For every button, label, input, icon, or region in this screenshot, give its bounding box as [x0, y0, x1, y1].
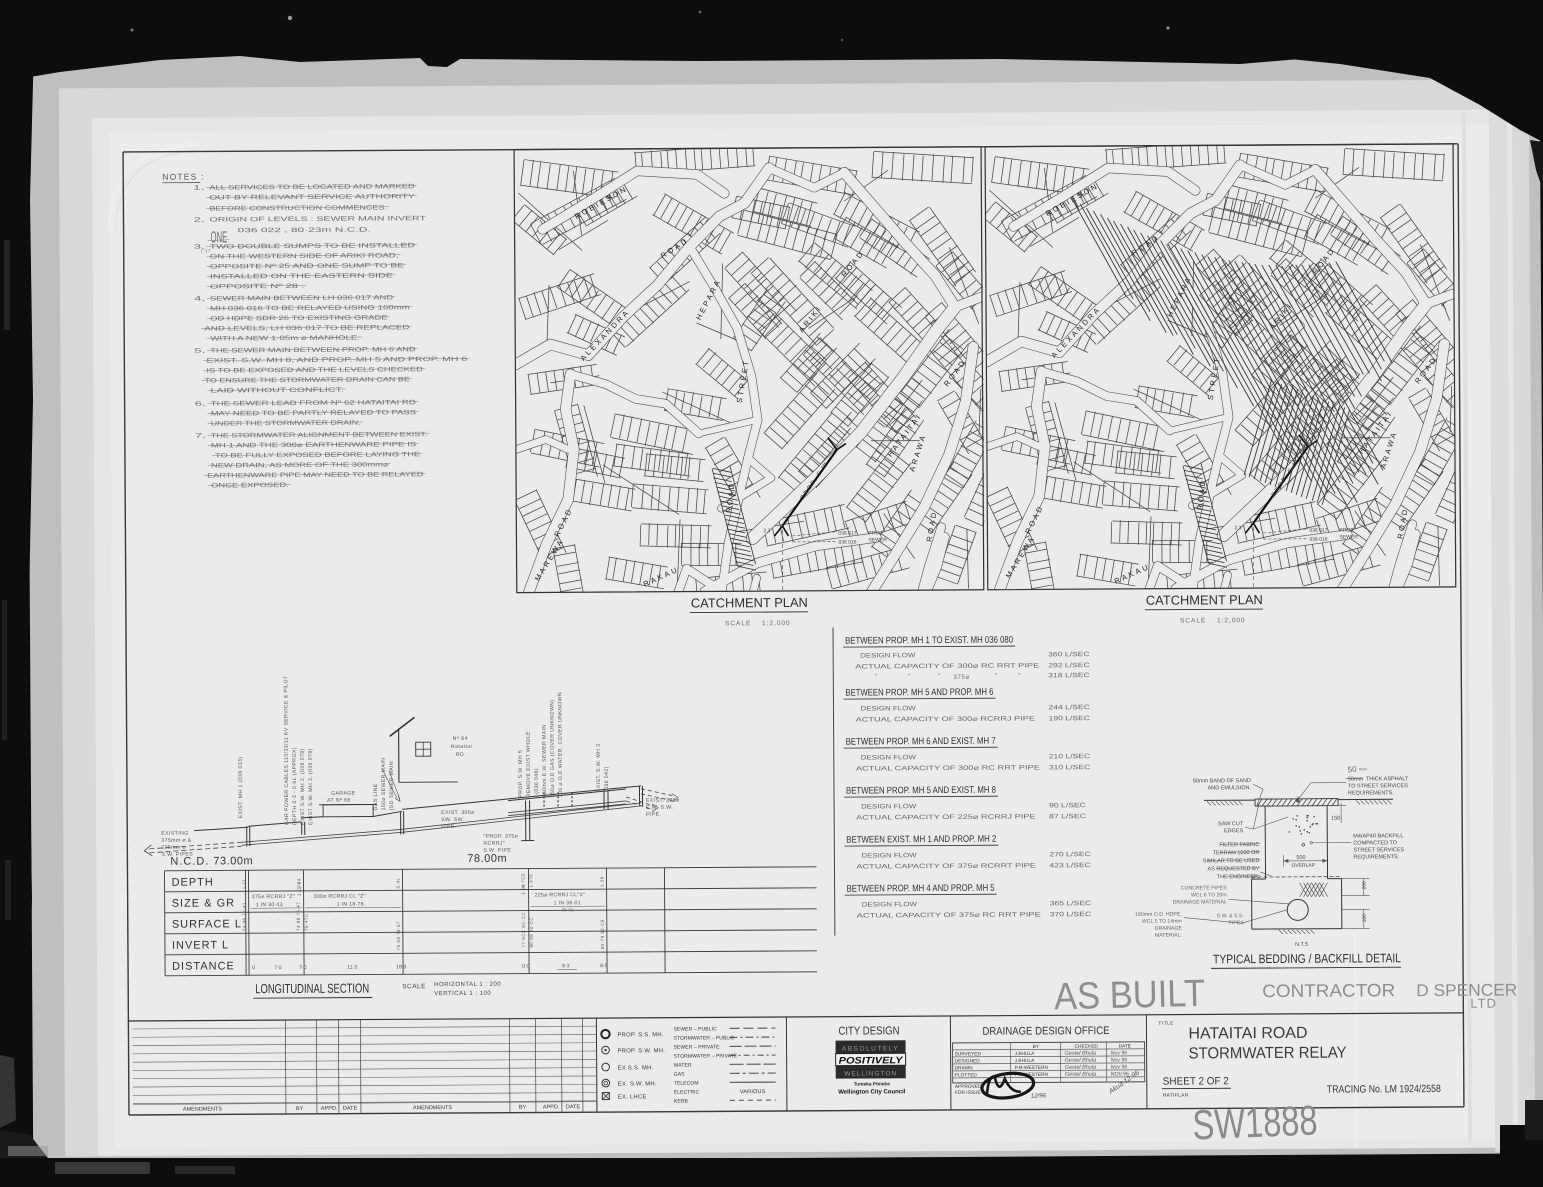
svg-text:225⌀ RCRRJ CL"X": 225⌀ RCRRJ CL"X"	[535, 892, 586, 898]
svg-text:S.W. PIPE: S.W. PIPE	[483, 848, 511, 854]
svg-text:12/96: 12/96	[1031, 1093, 1047, 1099]
svg-text:EXIST. 300⌀: EXIST. 300⌀	[441, 810, 475, 816]
svg-text:APPD.: APPD.	[543, 1104, 560, 1110]
svg-text:78.00m: 78.00m	[467, 853, 507, 865]
svg-text:1:2,000: 1:2,000	[762, 620, 791, 627]
svg-text:87 L/SEC: 87 L/SEC	[1049, 813, 1086, 820]
svg-text:74·88 75·47: 74·88 75·47	[296, 902, 301, 931]
svg-text:THE ENGINEER.: THE ENGINEER.	[1217, 874, 1260, 880]
svg-text:AND EMULSION.: AND EMULSION.	[1208, 785, 1252, 791]
svg-text:0: 0	[252, 965, 255, 971]
svg-text:2,: 2,	[193, 217, 205, 224]
svg-text:11·3: 11·3	[347, 965, 357, 971]
svg-text:Gestel Bhula: Gestel Bhula	[1065, 1051, 1097, 1057]
svg-text:PIPE.: PIPE.	[441, 824, 456, 830]
svg-text:APPD.: APPD.	[321, 1106, 338, 1112]
svg-text:360 L/SEC: 360 L/SEC	[1048, 651, 1090, 658]
svg-text:4,: 4,	[194, 296, 206, 303]
svg-text:Wellington City Council: Wellington City Council	[838, 1089, 906, 1095]
svg-text:375⌀ RCRRJ "Z": 375⌀ RCRRJ "Z"	[252, 894, 295, 900]
svg-text:90 L/SEC: 90 L/SEC	[1049, 802, 1086, 809]
svg-text:EX. LHCE: EX. LHCE	[618, 1094, 647, 1100]
svg-text:244 L/SEC: 244 L/SEC	[1048, 704, 1090, 711]
svg-text:DATE: DATE	[1119, 1043, 1131, 1049]
svg-text:EXIST. 225⌀: EXIST. 225⌀	[646, 798, 680, 804]
svg-text:DRAINAGE: DRAINAGE	[1155, 926, 1183, 932]
svg-text:WCL 5 TO 14mm: WCL 5 TO 14mm	[1142, 919, 1182, 925]
svg-text:160mm O.D. HDPE,: 160mm O.D. HDPE,	[1135, 912, 1182, 918]
svg-text:7·0: 7·0	[299, 965, 307, 971]
svg-text:DATE: DATE	[343, 1106, 358, 1112]
svg-text:150: 150	[1331, 816, 1340, 822]
svg-text:”: ”	[1018, 673, 1020, 680]
svg-text:SEWER – PRIVATE: SEWER – PRIVATE	[674, 1044, 721, 1050]
svg-text:ONCE EXPOSED.: ONCE EXPOSED.	[211, 482, 289, 489]
svg-text:80·08 80·CC: 80·08 80·CC	[529, 917, 534, 948]
svg-text:8·3: 8·3	[562, 963, 570, 969]
svg-text:1·94: 1·94	[521, 884, 526, 895]
svg-text:RCRRJ": RCRRJ"	[483, 841, 505, 847]
svg-text:370 L/SEC: 370 L/SEC	[1050, 911, 1092, 918]
svg-text:AS BUILT: AS BUILT	[1054, 973, 1206, 1019]
svg-text:EXIST. S.W. MH 3: EXIST. S.W. MH 3	[596, 744, 602, 793]
svg-text:75·68 76·57: 75·68 76·57	[396, 921, 401, 950]
svg-text:PIPES: PIPES	[1228, 920, 1244, 926]
svg-text:VERTICAL 1 : 100: VERTICAL 1 : 100	[434, 991, 491, 997]
svg-text:WITH A NEW 1·05m ⌀ MANHOLE.: WITH A NEW 1·05m ⌀ MANHOLE.	[210, 335, 360, 343]
svg-text:NOTES :: NOTES :	[162, 172, 204, 182]
svg-text:INVERT L: INVERT L	[172, 939, 229, 951]
svg-text:LTD: LTD	[1470, 996, 1497, 1011]
svg-text:150⌀ O.E GAS (COVER UNKNOWN): 150⌀ O.E GAS (COVER UNKNOWN)	[549, 699, 556, 797]
svg-text:CATCHMENT PLAN: CATCHMENT PLAN	[691, 595, 808, 611]
svg-text:S.W. PIPES: S.W. PIPES	[161, 852, 193, 858]
svg-text:LONGITUDINAL SECTION: LONGITUDINAL SECTION	[255, 981, 369, 997]
svg-text:POSITIVELY: POSITIVELY	[839, 1055, 905, 1066]
svg-text:GAS: GAS	[674, 1072, 685, 1078]
svg-text:0·4L: 0·4L	[396, 877, 401, 888]
svg-text:SCALE: SCALE	[1180, 617, 1206, 624]
svg-text:DESIGN FLOW: DESIGN FLOW	[860, 705, 916, 712]
svg-text:365 L/SEC: 365 L/SEC	[1050, 900, 1092, 907]
svg-text:TELECOM: TELECOM	[674, 1081, 699, 1087]
svg-text:DESIGN FLOW: DESIGN FLOW	[861, 754, 917, 761]
svg-text:TERRAM 1000 OR: TERRAM 1000 OR	[1213, 850, 1260, 856]
svg-text:BETWEEN PROP. MH 1 TO EXIST.: BETWEEN PROP. MH 1 TO EXIST. MH 036 080	[845, 635, 1013, 647]
svg-text:ACTUAL CAPACITY OF 300⌀ RC: ACTUAL CAPACITY OF 300⌀ RC RRT PIPE	[856, 764, 1040, 772]
svg-text:ABSOLUTELY: ABSOLUTELY	[842, 1045, 899, 1052]
svg-text:Gestel Bhula: Gestel Bhula	[1065, 1058, 1097, 1064]
svg-text:STORMWATER RELAY: STORMWATER RELAY	[1189, 1045, 1347, 1063]
svg-text:SIZE & GR: SIZE & GR	[172, 897, 235, 909]
svg-text:100: 100	[1362, 914, 1368, 923]
svg-text:BY: BY	[1033, 1044, 1040, 1050]
svg-text:500: 500	[1296, 855, 1305, 861]
svg-text:ACTUAL CAPACITY OF 375⌀ RC: ACTUAL CAPACITY OF 375⌀ RCRRT PIPE	[856, 862, 1035, 870]
svg-text:”: ”	[938, 673, 940, 680]
svg-text:P.M.WESTERN: P.M.WESTERN	[1015, 1065, 1049, 1071]
svg-text:BETWEEN PROP. MH 6 AND EXIS: BETWEEN PROP. MH 6 AND EXIST. MH 7	[846, 736, 996, 748]
svg-text:BETWEEN EXIST. MH 1 AND PRO: BETWEEN EXIST. MH 1 AND PROP. MH 2	[846, 834, 996, 846]
svg-text:COMPACTED TO: COMPACTED TO	[1353, 840, 1397, 846]
svg-text:Gestel Bhula: Gestel Bhula	[1065, 1065, 1097, 1071]
svg-text:0·0: 0·0	[522, 964, 530, 970]
svg-text:36·01: 36·01	[562, 907, 574, 912]
svg-text:SIMILAR TO BE USED: SIMILAR TO BE USED	[1203, 858, 1260, 864]
svg-text:HATIPLAN: HATIPLAN	[1163, 1093, 1189, 1099]
svg-text:SW. SW.: SW. SW.	[441, 817, 464, 823]
svg-text:BETWEEN PROP. MH 5 AND EXIS: BETWEEN PROP. MH 5 AND EXIST. MH 8	[846, 785, 996, 797]
svg-text:APPROVED: APPROVED	[955, 1084, 982, 1090]
svg-text:150mm E.W. SEWER MAIN: 150mm E.W. SEWER MAIN	[542, 724, 548, 797]
svg-text:7,: 7,	[195, 433, 207, 440]
svg-text:1 IN 18·76: 1 IN 18·76	[337, 902, 364, 908]
svg-text:ACTUAL CAPACITY OF 375⌀ RC: ACTUAL CAPACITY OF 375⌀ RC RRT PIPE	[857, 911, 1041, 919]
svg-text:CONCRETE PIPES: CONCRETE PIPES	[1181, 885, 1227, 891]
svg-text:6,: 6,	[195, 401, 207, 408]
svg-text:TITLE: TITLE	[1158, 1021, 1174, 1027]
svg-text:80·79 82·C8: 80·79 82·C8	[600, 919, 605, 949]
svg-text:DESIGN FLOW: DESIGN FLOW	[862, 901, 918, 908]
svg-text:PROP. S.W. MH.: PROP. S.W. MH.	[618, 1048, 666, 1054]
svg-text:M4/AP40 BACKFILL: M4/AP40 BACKFILL	[1353, 833, 1403, 839]
svg-text:3,: 3,	[194, 244, 206, 251]
svg-text:310 L/SEC: 310 L/SEC	[1049, 764, 1091, 771]
svg-text:210 L/SEC: 210 L/SEC	[1049, 753, 1091, 760]
svg-text:PROP. S.W. MH 5: PROP. S.W. MH 5	[518, 750, 524, 798]
svg-text:ELECTRIC: ELECTRIC	[674, 1090, 700, 1096]
svg-text:HATAITAI ROAD: HATAITAI ROAD	[1188, 1025, 1307, 1043]
svg-text:292 L/SEC: 292 L/SEC	[1048, 662, 1090, 669]
svg-text:Nº 64: Nº 64	[453, 736, 468, 742]
svg-text:EXIST S.W. MH 3, (036 078): EXIST S.W. MH 3, (036 078)	[308, 748, 314, 825]
svg-text:CAR POWER CABLES 110/33/11 KV: CAR POWER CABLES 110/33/11 KV SERVICE & …	[283, 675, 290, 825]
svg-text:N.T.S: N.T.S	[1295, 942, 1309, 948]
svg-text:HORIZONTAL 1 : 200: HORIZONTAL 1 : 200	[434, 982, 501, 988]
svg-text:LAID WITHOUT CONFLICT.: LAID WITHOUT CONFLICT.	[211, 387, 345, 395]
svg-text:REMOVE EXIST WHOLE: REMOVE EXIST WHOLE	[526, 731, 532, 798]
svg-text:Tumeka Pōneke: Tumeka Pōneke	[854, 1081, 891, 1087]
svg-text:S.W. & S.S.: S.W. & S.S.	[1217, 913, 1244, 919]
svg-text:MATERIAL:: MATERIAL:	[1155, 933, 1182, 939]
svg-text:ACTUAL CAPACITY OF 225⌀ RC: ACTUAL CAPACITY OF 225⌀ RCRRJ PIPE	[856, 813, 1035, 821]
svg-text:DRAINAGE MATERIAL: DRAINAGE MATERIAL	[1173, 899, 1227, 905]
svg-text:DRAWN: DRAWN	[955, 1065, 974, 1071]
svg-text:270 L/SEC: 270 L/SEC	[1049, 851, 1091, 858]
svg-text:D SPENCER: D SPENCER	[1416, 981, 1517, 1001]
svg-text:"PROP. 375⌀: "PROP. 375⌀	[483, 834, 518, 840]
svg-text:GAS LINE: GAS LINE	[373, 783, 379, 810]
svg-text:50mm: 50mm	[1348, 776, 1364, 782]
svg-text:UNDER THE STORMWATER DRAIN.: UNDER THE STORMWATER DRAIN.	[211, 420, 361, 428]
svg-text:WATER: WATER	[674, 1063, 692, 1069]
svg-text:SHEET 2 OF 2: SHEET 2 OF 2	[1163, 1075, 1229, 1087]
svg-text:BETWEEN PROP. MH 5 AND PROP: BETWEEN PROP. MH 5 AND PROP. MH 6	[845, 687, 993, 699]
svg-text:THICK ASPHALT: THICK ASPHALT	[1366, 776, 1409, 782]
svg-text:”: ”	[995, 673, 997, 680]
svg-text:WELLINGTON: WELLINGTON	[844, 1070, 897, 1077]
svg-text:DATE: DATE	[566, 1104, 581, 1110]
svg-text:EXIST. MH 1 (036 013): EXIST. MH 1 (036 013)	[238, 757, 244, 819]
svg-text:TRACING No. LM 1924/2558: TRACING No. LM 1924/2558	[1327, 1083, 1441, 1096]
svg-text:SW1888: SW1888	[1192, 1096, 1319, 1148]
svg-text:200: 200	[1362, 881, 1368, 890]
svg-text:EXISTING: EXISTING	[161, 831, 188, 837]
svg-text:1 IN 36·01: 1 IN 36·01	[554, 900, 581, 906]
svg-text:STREET SERVICES: STREET SERVICES	[1353, 847, 1404, 853]
svg-text:77·5CC 8C·CC: 77·5CC 8C·CC	[521, 912, 526, 948]
svg-text:AMENDMENTS: AMENDMENTS	[183, 1106, 222, 1112]
svg-text:TO STREET SERVICES: TO STREET SERVICES	[1348, 783, 1408, 789]
svg-text:SAW CUT: SAW CUT	[1218, 821, 1244, 827]
svg-text:EX. S.W. MH.: EX. S.W. MH.	[618, 1081, 657, 1087]
svg-text:EX S.S. MH.: EX S.S. MH.	[618, 1065, 654, 1071]
svg-text:PROP. S.S. MH.: PROP. S.S. MH.	[617, 1032, 663, 1038]
svg-text:m/m: m/m	[1359, 766, 1367, 771]
svg-text:ACTUAL CAPACITY OF 300⌀ RC: ACTUAL CAPACITY OF 300⌀ RCRRJ PIPE	[856, 715, 1035, 723]
svg-text:73.00m: 73.00m	[213, 855, 253, 867]
svg-text:50mm BAND OF SAND: 50mm BAND OF SAND	[1193, 778, 1251, 784]
svg-text:036 022 , 80·23m N.C.D.: 036 022 , 80·23m N.C.D.	[238, 226, 372, 234]
svg-text:BY: BY	[519, 1105, 527, 1111]
svg-text:18.3: 18.3	[396, 964, 406, 970]
svg-text:CHECKED: CHECKED	[1075, 1044, 1099, 1050]
svg-text:WCL 6 TO 20m: WCL 6 TO 20m	[1191, 892, 1227, 898]
svg-text:J.BHULA: J.BHULA	[1015, 1058, 1036, 1064]
svg-text:74·98 75·41: 74·98 75·41	[242, 902, 247, 931]
svg-text:SCALE: SCALE	[402, 983, 426, 990]
svg-text:REQUIREMENTS.: REQUIREMENTS.	[1353, 854, 1399, 860]
svg-text:BY: BY	[296, 1106, 304, 1112]
svg-text:375⌀: 375⌀	[953, 674, 970, 681]
svg-text:1·11: 1·11	[242, 879, 247, 890]
svg-text:5,: 5,	[194, 348, 206, 355]
svg-text:FILTER FABRIC: FILTER FABRIC	[1219, 842, 1259, 848]
svg-text:AS REQUESTED BY: AS REQUESTED BY	[1207, 866, 1259, 872]
svg-text:1:2,000: 1:2,000	[1217, 617, 1246, 624]
svg-text:RD: RD	[456, 752, 465, 758]
svg-text:SURVEYED: SURVEYED	[955, 1051, 982, 1057]
svg-text:CONTRACTOR: CONTRACTOR	[1262, 980, 1395, 1001]
svg-text:PLOTTED: PLOTTED	[955, 1072, 978, 1078]
svg-text:DEPTH: DEPTH	[172, 876, 214, 888]
svg-text:AMENDMENTS: AMENDMENTS	[413, 1105, 452, 1111]
svg-text:DISTANCE: DISTANCE	[172, 960, 235, 972]
svg-text:1·570: 1·570	[528, 874, 533, 888]
svg-text:FOR ISSUE: FOR ISSUE	[955, 1090, 981, 1096]
svg-text:E.W. S.W.: E.W. S.W.	[646, 805, 673, 811]
svg-text:225mm ⌀: 225mm ⌀	[161, 845, 186, 851]
svg-text:300⌀ RCRRJ CL "Z": 300⌀ RCRRJ CL "Z"	[314, 894, 366, 900]
svg-text:1 IN 30·43: 1 IN 30·43	[256, 902, 283, 908]
svg-text:VARIOUS: VARIOUS	[740, 1089, 766, 1095]
svg-text:KERB: KERB	[674, 1099, 689, 1105]
svg-text:”: ”	[875, 673, 877, 680]
svg-text:ACTUAL CAPACITY OF 300⌀ RC: ACTUAL CAPACITY OF 300⌀ RC RRT PIPE	[855, 662, 1039, 670]
svg-text:8·9: 8·9	[600, 963, 608, 969]
svg-text:OPPOSITE Nº 28 .: OPPOSITE Nº 28 .	[210, 283, 305, 291]
svg-text:150⌀ SEWER MAIN: 150⌀ SEWER MAIN	[381, 758, 387, 811]
svg-text:CITY DESIGN: CITY DESIGN	[838, 1025, 899, 1037]
svg-text:TYPICAL BEDDING / BACKFILL: TYPICAL BEDDING / BACKFILL DETAIL	[1213, 951, 1401, 966]
svg-text:EXIST S.W. MH 2, (036 078): EXIST S.W. MH 2, (036 078)	[300, 748, 306, 825]
svg-text:Gestel Bhula: Gestel Bhula	[1065, 1072, 1097, 1078]
svg-text:STORMWATER – PRIVATE: STORMWATER – PRIVATE	[674, 1053, 738, 1059]
svg-text:”: ”	[908, 673, 910, 680]
svg-text:Nov 96: Nov 96	[1111, 1064, 1128, 1070]
svg-text:423 L/SEC: 423 L/SEC	[1049, 862, 1091, 869]
svg-text:190 L/SEC: 190 L/SEC	[1049, 715, 1091, 722]
svg-text:75·47C: 75·47C	[304, 913, 309, 930]
svg-text:ORIGIN OF LEVELS : SEWER MAI: ORIGIN OF LEVELS : SEWER MAIN INVERT	[209, 215, 426, 223]
svg-text:SURFACE L: SURFACE L	[172, 918, 242, 930]
svg-text:1,: 1,	[193, 185, 205, 192]
svg-text:REQUIREMENTS.: REQUIREMENTS.	[1348, 790, 1394, 796]
svg-text:(036 042): (036 042)	[604, 766, 610, 792]
svg-text:375mm ⌀ &: 375mm ⌀ &	[161, 838, 192, 844]
svg-text:. (036 048): . (036 048)	[534, 768, 540, 798]
svg-text:DESIGN FLOW: DESIGN FLOW	[860, 652, 916, 659]
svg-text:J.BHULA: J.BHULA	[1015, 1051, 1036, 1057]
svg-text:7·0: 7·0	[274, 965, 282, 971]
svg-text:SCALE: SCALE	[725, 620, 751, 627]
svg-text:DESIGNED: DESIGNED	[955, 1058, 981, 1064]
svg-text:DESIGN FLOW: DESIGN FLOW	[861, 852, 917, 859]
svg-text:AT Nº 66: AT Nº 66	[327, 798, 351, 804]
svg-text:50: 50	[1347, 765, 1357, 775]
svg-text:318 L/SEC: 318 L/SEC	[1048, 672, 1090, 679]
svg-text:(SD SEWER MAIN: (SD SEWER MAIN	[389, 761, 395, 810]
svg-text:Nov 96: Nov 96	[1111, 1050, 1128, 1056]
svg-text:GARAGE: GARAGE	[331, 791, 356, 797]
svg-text:Nov 96: Nov 96	[1111, 1057, 1128, 1063]
svg-text:CATCHMENT PLAN: CATCHMENT PLAN	[1146, 592, 1263, 608]
svg-text:DESIGN FLOW: DESIGN FLOW	[861, 803, 917, 810]
svg-text:1·29: 1·29	[600, 876, 605, 887]
svg-text:BETWEEN PROP. MH 4 AND PROP: BETWEEN PROP. MH 4 AND PROP. MH 5	[847, 883, 995, 895]
svg-text:1·C76: 1·C76	[297, 881, 302, 896]
svg-text:100 ⌀ O.E WATER, COVER UNK: 100 ⌀ O.E WATER, COVER UNKNOWN	[557, 692, 564, 797]
svg-text:DEPTH 0·3 - 0·6L (APPROX): DEPTH 0·3 - 0·6L (APPROX)	[292, 747, 298, 825]
svg-text:SEWER – PUBLIC: SEWER – PUBLIC	[673, 1026, 717, 1032]
svg-text:Hataitai: Hataitai	[451, 744, 473, 750]
svg-text:STORMWATER – PUBLIC: STORMWATER – PUBLIC	[673, 1035, 734, 1041]
svg-text:OVERLAP: OVERLAP	[1291, 863, 1315, 869]
svg-text:DRAINAGE DESIGN OFFICE: DRAINAGE DESIGN OFFICE	[982, 1025, 1109, 1038]
svg-text:PIPE.: PIPE.	[646, 812, 661, 818]
svg-text:EDGES: EDGES	[1224, 828, 1244, 834]
